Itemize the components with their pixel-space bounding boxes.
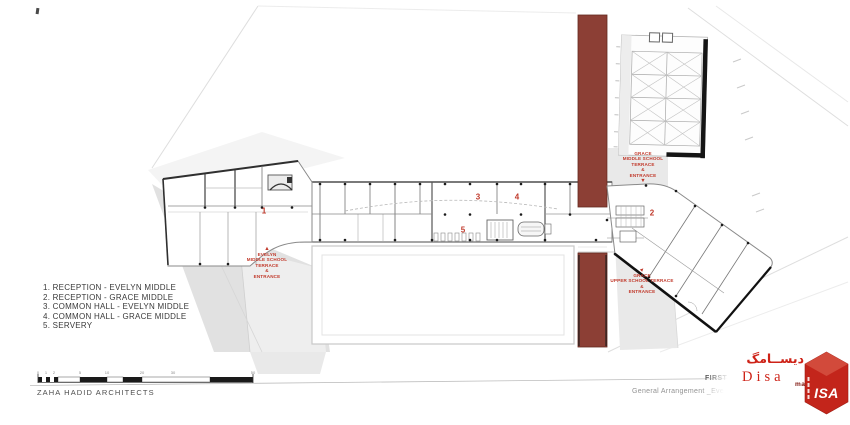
brand-arabic-text: دیســامگ — [742, 353, 804, 366]
scale-label: 5 — [79, 370, 82, 375]
architect-name: ZAHA HADID ARCHITECTS — [37, 388, 155, 397]
scale-label: 1 — [45, 370, 48, 375]
brand-name: Disa — [742, 370, 785, 385]
dimension-ticks — [733, 59, 764, 212]
cube-letters: ISA — [814, 385, 839, 401]
legend-item: 1. RECEPTION - EVELYN MIDDLE — [43, 283, 189, 293]
room-label-1: 1 — [262, 207, 266, 216]
scale-label: 50 — [251, 370, 256, 375]
room-label-4: 4 — [515, 193, 519, 202]
scale-label: 2 — [53, 370, 56, 375]
annotation-line: ENTRANCE — [602, 289, 682, 294]
down-arrow-icon: ▼ — [603, 178, 683, 184]
annotation-grace-upper-entrance: ▲ GRACE UPPER SCHOOL TERRACE & ENTRANCE — [602, 267, 682, 295]
isa-cube-logo: ISA — [803, 349, 850, 419]
drawing-sheet: 0 1 2 5 10 20 30 50 1 2 3 4 5 ▲ EVELYN M… — [0, 0, 850, 425]
scale-label: 20 — [140, 370, 145, 375]
room-label-5: 5 — [461, 226, 465, 235]
legend-item: 5. SERVERY — [43, 321, 189, 331]
scale-bar: 0 1 2 5 10 20 30 50 — [37, 370, 256, 383]
annotation-line: ENTRANCE — [227, 274, 307, 279]
legend-item: 4. COMMON HALL - GRACE MIDDLE — [43, 312, 189, 322]
annotation-grace-middle-entrance: GRACE MIDDLE SCHOOL TERRACE & ENTRANCE ▼ — [603, 151, 683, 184]
scale-label: 30 — [171, 370, 176, 375]
legend-item: 3. COMMON HALL - EVELYN MIDDLE — [43, 302, 189, 312]
room-label-3: 3 — [476, 193, 480, 202]
courts-building — [613, 32, 708, 158]
legend-item: 2. RECEPTION - GRACE MIDDLE — [43, 293, 189, 303]
room-label-2: 2 — [650, 209, 654, 218]
page-mark — [36, 8, 40, 14]
scale-label: 10 — [105, 370, 110, 375]
bar-building — [300, 182, 612, 242]
courtyard — [312, 246, 574, 344]
annotation-evelyn-middle-entrance: ▲ EVELYN MIDDLE SCHOOL TERRACE & ENTRANC… — [227, 246, 307, 279]
scale-label: 0 — [37, 370, 40, 375]
room-legend: 1. RECEPTION - EVELYN MIDDLE 2. RECEPTIO… — [43, 283, 189, 331]
